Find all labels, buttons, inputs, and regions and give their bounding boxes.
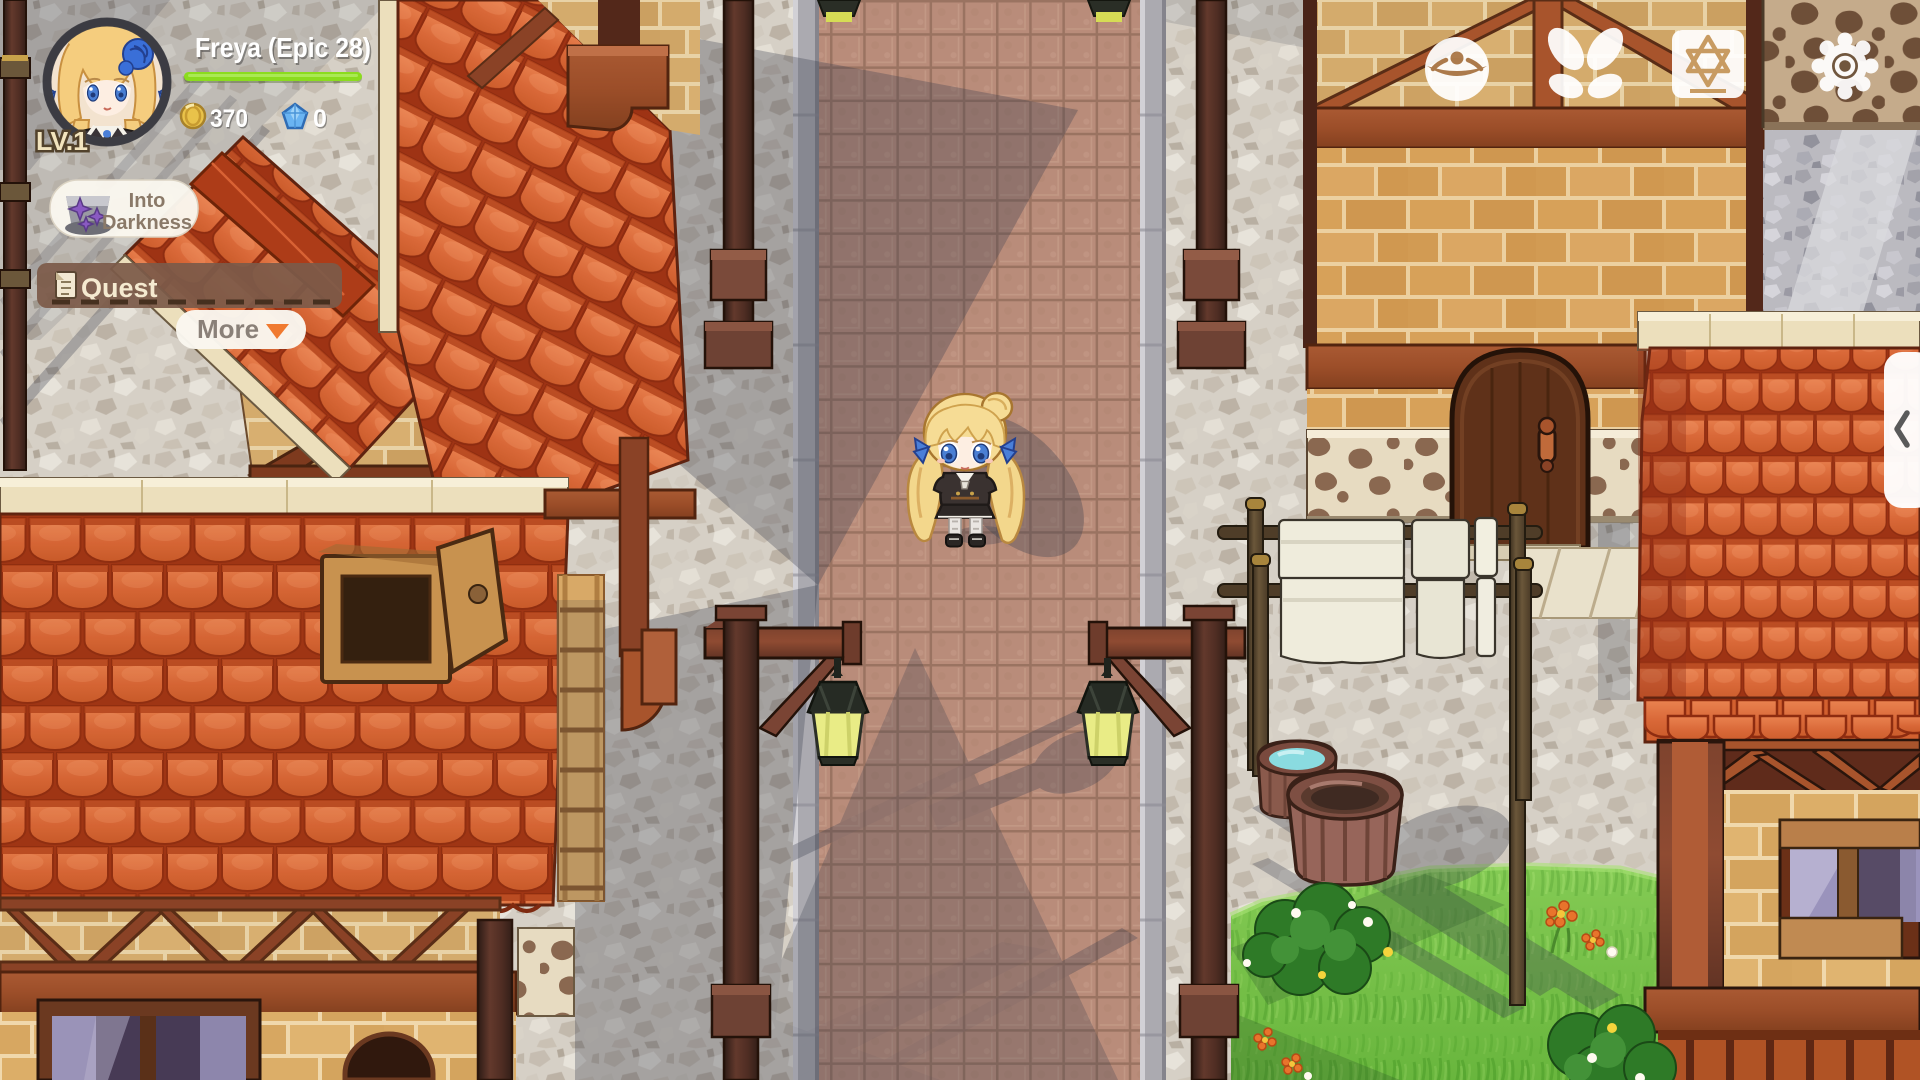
svg-text:Freya (Epic 28): Freya (Epic 28) (195, 32, 371, 63)
svg-text:0: 0 (313, 105, 327, 133)
svg-text:More: More (197, 314, 259, 344)
svg-text:370: 370 (210, 105, 248, 133)
svg-text:Darkness: Darkness (102, 212, 192, 234)
svg-text:Quest: Quest (81, 273, 158, 303)
svg-text:Into: Into (129, 190, 166, 212)
svg-text:LV.1: LV.1 (36, 126, 88, 156)
